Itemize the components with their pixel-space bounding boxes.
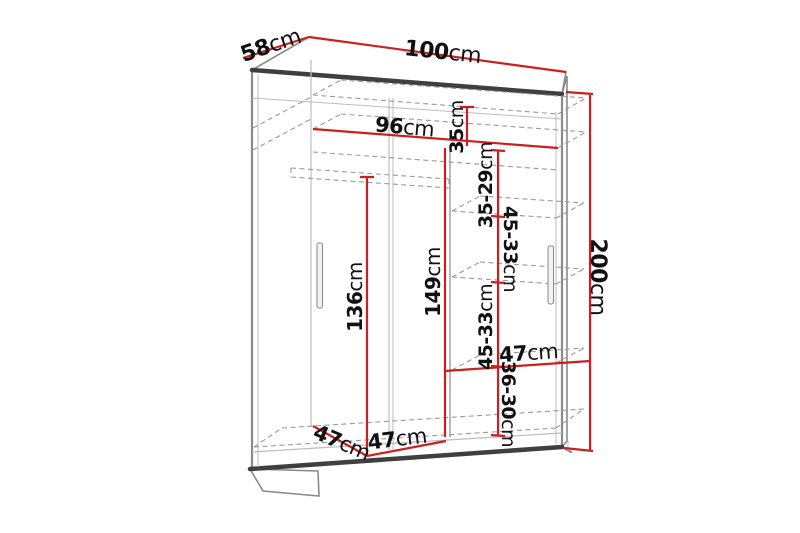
dim-label-upper-shelf-spacing: 35-29cm [475, 142, 497, 228]
dim-label-height: 200cm [585, 239, 610, 316]
dim-label-shelf-width: 47cm [498, 339, 559, 367]
dim-label-shelf-column-height: 149cm [421, 247, 445, 317]
dim-label-top-shelf-height: 35cm [446, 100, 468, 153]
dim-label-middle-shelf-spacing-a: 45-33cm [499, 206, 521, 292]
dim-label-bottom-left-width: 47cm [366, 424, 428, 455]
dim-label-hanging-space-height: 136cm [343, 262, 367, 332]
bottom-front-edge [250, 447, 562, 469]
dim-label-middle-shelf-spacing-b: 45-33cm [475, 284, 497, 370]
left-panel-depth-lines [253, 97, 311, 150]
furniture-dimension-diagram: 58cm 100cm 200cm 96cm 35cm 35-29cm 45-33… [0, 0, 800, 533]
right-door-handle [548, 246, 554, 304]
dim-label-bottom-depth: 47cm [310, 420, 374, 465]
dimension-lines [243, 37, 593, 456]
wardrobe-technical-drawing: 58cm 100cm 200cm 96cm 35cm 35-29cm 45-33… [0, 0, 800, 533]
left-door-handle [317, 243, 323, 308]
wardrobe-left-foot [250, 469, 319, 496]
dim-label-usable-width: 96cm [374, 112, 435, 141]
dim-label-lower-shelf-spacing: 36-30cm [497, 361, 519, 447]
dim-line-usable-width [313, 129, 558, 148]
